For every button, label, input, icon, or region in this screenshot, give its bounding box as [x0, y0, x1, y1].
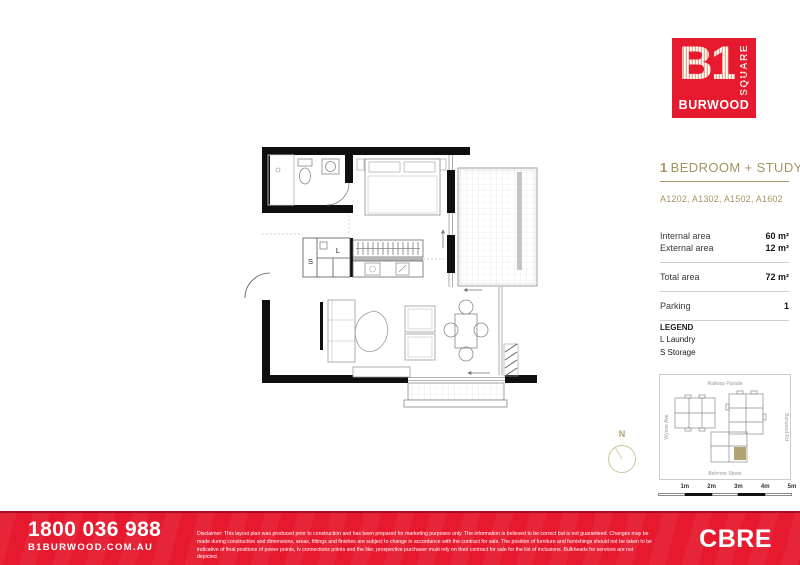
balcony-right [458, 168, 537, 286]
scale-label-2m: 2m [707, 484, 716, 490]
logo-square-text: SQUARE [739, 44, 750, 96]
website-url: B1BURWOOD.COM.AU [28, 542, 161, 553]
table-row-internal: Internal area 60 m² [660, 230, 789, 242]
scale-segment [658, 493, 685, 496]
legend: LEGEND L Laundry S Storage [660, 322, 696, 359]
scale-segment [738, 493, 765, 496]
living-dining-furniture [328, 300, 488, 377]
balcony-bottom [404, 383, 507, 407]
brochure-page: { "logo": { "b1": "B1", "square": "SQUAR… [0, 0, 800, 565]
contact-block: 1800 036 988 B1BURWOOD.COM.AU [28, 519, 161, 553]
street-burwood-rd: Burwood Rd [783, 413, 789, 441]
unit-bedroom-count: 1 [660, 160, 668, 175]
table-row-external: External area 12 m² [660, 242, 789, 254]
scale-label-5m: 5m [788, 484, 797, 490]
logo-b1-text: B1 [679, 38, 735, 87]
total-area-value: 72 m² [765, 271, 789, 283]
locality-map: Railway Parade Belmore Street Burwood Rd… [659, 374, 791, 480]
scale-segment [765, 493, 792, 496]
table-divider [660, 320, 789, 321]
title-divider [660, 181, 789, 182]
bedroom-furniture [357, 159, 446, 215]
area-table: Internal area 60 m² External area 12 m² … [660, 230, 789, 329]
scale-label-1m: 1m [680, 484, 689, 490]
b1-square-logo: B1 SQUARE BURWOOD [672, 38, 756, 118]
compass-needle [615, 447, 622, 459]
cbre-logo: CBRE [699, 525, 772, 554]
logo-burwood-text: BURWOOD [672, 98, 756, 112]
entry-door-arc [245, 273, 270, 298]
internal-area-value: 60 m² [765, 230, 789, 242]
disclaimer-text: Disclaimer: This layout plan was produce… [197, 531, 655, 562]
parking-value: 1 [784, 300, 789, 312]
scale-label-4m: 4m [761, 484, 770, 490]
laundry-label: L [336, 246, 340, 255]
total-area-label: Total area [660, 271, 700, 283]
legend-item-laundry: L Laundry [660, 334, 696, 346]
map-border [660, 375, 791, 480]
scale-label-3m: 3m [734, 484, 743, 490]
footer: 1800 036 988 B1BURWOOD.COM.AU Disclaimer… [0, 511, 800, 565]
legend-title: LEGEND [660, 322, 696, 334]
parking-label: Parking [660, 300, 691, 312]
street-belmore-street: Belmore Street [708, 471, 742, 477]
storage-laundry-kitchen [262, 215, 447, 277]
scale-segment [685, 493, 712, 496]
highlighted-unit [734, 447, 746, 460]
table-divider [660, 262, 789, 263]
internal-area-label: Internal area [660, 230, 711, 242]
apartment-numbers: A1202, A1302, A1502, A1602 [660, 194, 800, 204]
scale-bar: 1m 2m 3m 4m 5m [658, 484, 798, 500]
unit-type-label: BEDROOM + STUDY [671, 160, 800, 175]
street-wynne-ave: Wynne Ave [664, 414, 670, 439]
table-divider [660, 291, 789, 292]
street-railway-parade: Railway Parade [707, 381, 742, 387]
scale-bar-segments [658, 493, 792, 496]
external-area-label: External area [660, 242, 714, 254]
external-area-value: 12 m² [765, 242, 789, 254]
floor-plan: S L [238, 130, 548, 415]
scale-segment [712, 493, 739, 496]
north-label: N [619, 429, 626, 439]
compass: N [600, 426, 644, 478]
bathroom-fixtures [268, 155, 349, 205]
unit-type-title: 1BEDROOM + STUDY [660, 160, 789, 175]
table-row-parking: Parking 1 [660, 300, 789, 312]
table-row-total: Total area 72 m² [660, 271, 789, 283]
legend-item-storage: S Storage [660, 347, 696, 359]
phone-number: 1800 036 988 [28, 519, 161, 541]
storage-label: S [308, 257, 313, 266]
